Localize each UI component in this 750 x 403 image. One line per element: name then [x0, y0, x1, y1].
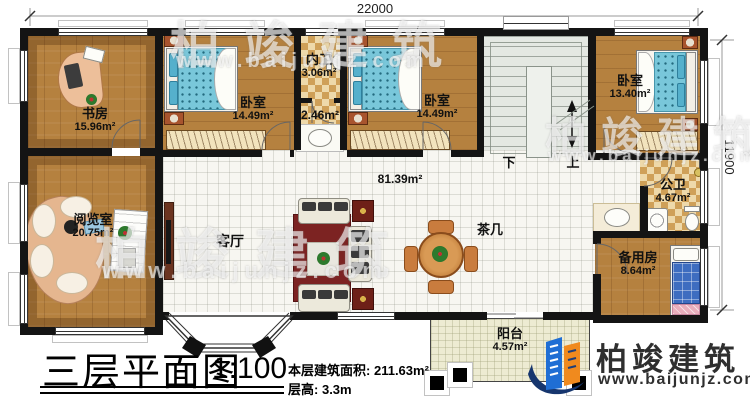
scale-label: 1:100	[212, 352, 287, 386]
room-label-public-bath: 公卫4.67m²	[644, 177, 702, 205]
stair-up-label: 上	[564, 155, 582, 170]
dimension-depth: 11900	[723, 127, 737, 187]
floor-height-label: 层高:	[288, 382, 318, 397]
room-label-bedroom2: 卧室14.49m²	[398, 93, 476, 121]
title-underline	[40, 386, 284, 388]
column-fill	[430, 376, 444, 390]
label-tea-table: 茶几	[468, 222, 512, 237]
room-label-bedroom1: 卧室14.49m²	[214, 95, 292, 123]
room-label-inner-bath: 内卫3.06m²	[296, 52, 342, 80]
column-legend-marker	[447, 362, 473, 388]
floor-height-line: 层高: 3.3m	[288, 379, 352, 398]
title-underline	[40, 392, 284, 394]
floor-plan-page: 22000 11900 书房15.96m² 卧室14.49m² 内卫3.06m²…	[0, 0, 750, 403]
floor-area-label: 本层建筑面积:	[288, 363, 370, 378]
floor-height-value: 3.3m	[322, 382, 352, 397]
brand-website: www.baijunjz.com	[598, 371, 750, 389]
brand-logo-icon	[526, 330, 588, 398]
area-label-corridor: 2.46m²	[296, 108, 344, 122]
floor-area-line: 本层建筑面积: 211.63m²	[288, 360, 429, 379]
area-label-living-room: 81.39m²	[368, 172, 432, 186]
room-label-reading-room: 阅览室20.75m²	[50, 212, 136, 240]
room-label-living-room: 客厅	[206, 233, 254, 250]
stair-down-label: 下	[500, 155, 518, 170]
floor-area-value: 211.63m²	[374, 363, 429, 378]
room-label-bedroom3: 卧室13.40m²	[592, 73, 668, 101]
room-label-spare-room: 备用房8.64m²	[598, 250, 678, 278]
stair-direction-arrow	[556, 100, 594, 148]
column-fill	[453, 368, 467, 382]
dimension-width: 22000	[350, 1, 400, 16]
room-label-study: 书房15.96m²	[52, 106, 138, 134]
